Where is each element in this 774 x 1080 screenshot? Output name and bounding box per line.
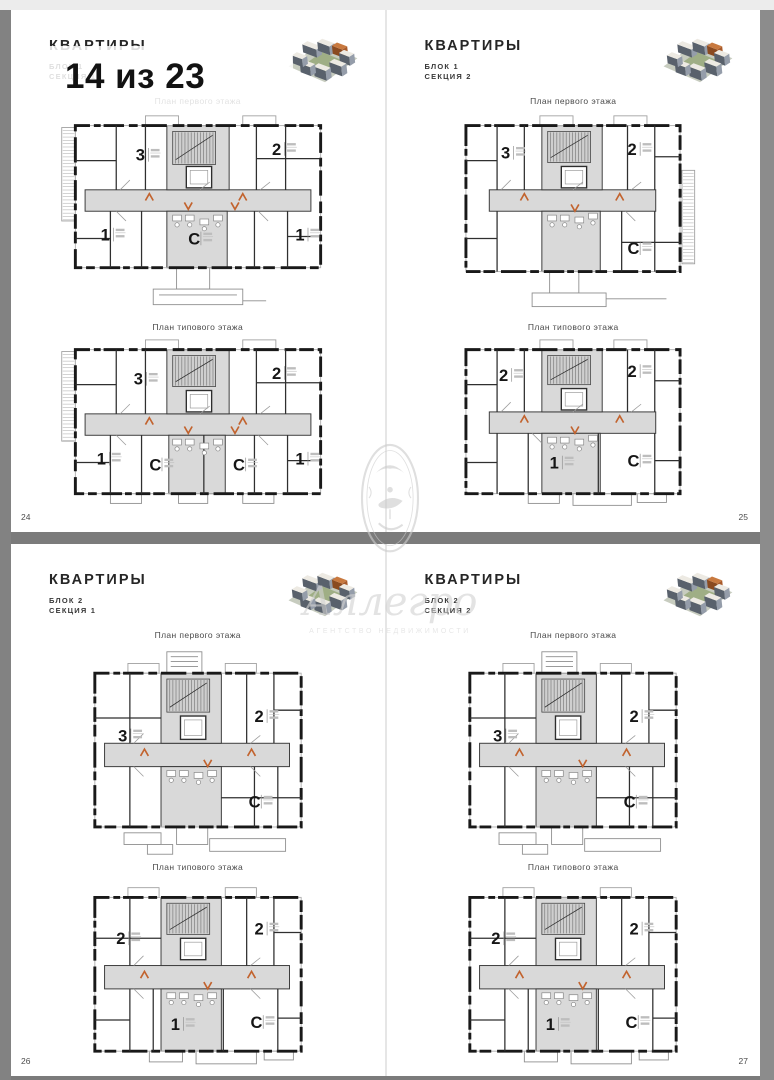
plan-title-typical-floor: План типового этажа [152,322,243,332]
svg-text:С: С [250,1013,262,1032]
page-number: 24 [21,512,30,522]
page-number: 25 [739,512,748,522]
svg-text:2: 2 [628,362,637,381]
svg-text:3: 3 [493,726,502,745]
svg-text:3: 3 [118,726,127,745]
plans-column: План первого этажа 32С План типового эта… [387,96,761,521]
page-header: КВАРТИРЫ БЛОК 2 СЕКЦИЯ 1 [49,572,147,616]
svg-text:2: 2 [630,920,639,939]
svg-text:С: С [188,229,200,248]
bottom-gap-band [0,1076,774,1080]
plan-title-first-floor: План первого этажа [155,630,241,640]
svg-text:2: 2 [630,707,639,726]
svg-text:3: 3 [135,146,144,165]
typical-floor-plan-drawing: 221С [427,336,719,521]
svg-text:2: 2 [254,920,263,939]
svg-text:2: 2 [116,929,125,948]
building-3d-render [283,562,363,628]
page-title: КВАРТИРЫ [425,38,523,54]
viewer-gutter-left [0,10,11,1080]
svg-text:С: С [248,793,260,812]
svg-text:1: 1 [100,225,109,244]
svg-text:3: 3 [134,370,143,389]
spread-gap-band [0,532,774,544]
page-subtitle: БЛОК 2 СЕКЦИЯ 1 [49,596,147,616]
svg-text:1: 1 [170,1015,179,1034]
svg-text:2: 2 [499,366,508,385]
page-subtitle: БЛОК 2 СЕКЦИЯ 2 [425,596,523,616]
page-header: КВАРТИРЫ БЛОК 2 СЕКЦИЯ 2 [425,572,523,616]
section-label: СЕКЦИЯ 1 [49,606,147,616]
plan-title-first-floor: План первого этажа [530,96,616,106]
svg-text:С: С [626,1013,638,1032]
block-label: БЛОК 2 [425,596,523,606]
page-24: КВАРТИРЫ БЛОК 1 СЕКЦИЯ 1 План первого эт… [11,10,385,532]
svg-text:С: С [149,456,161,475]
svg-text:2: 2 [272,140,281,159]
typical-floor-plan-drawing: 321СС1 [52,336,344,521]
first-floor-plan-drawing: 321С1 [52,110,344,316]
pdf-spread-bottom: КВАРТИРЫ БЛОК 2 СЕКЦИЯ 1 План первого эт… [11,544,760,1076]
plan-title-typical-floor: План типового этажа [528,322,619,332]
svg-text:С: С [233,456,245,475]
pdf-spread-top: КВАРТИРЫ БЛОК 1 СЕКЦИЯ 1 План первого эт… [11,10,760,532]
svg-text:1: 1 [97,450,106,469]
typical-floor-plan-drawing: 221С [52,876,344,1071]
svg-text:1: 1 [295,450,304,469]
svg-text:1: 1 [546,1015,555,1034]
plans-column: План первого этажа 32С План типового эта… [387,630,761,1071]
svg-text:3: 3 [501,144,510,163]
first-floor-plan-drawing: 32С [52,644,344,856]
page-25: КВАРТИРЫ БЛОК 1 СЕКЦИЯ 2 План первого эт… [385,10,761,532]
pdf-viewer: КВАРТИРЫ БЛОК 1 СЕКЦИЯ 1 План первого эт… [0,0,774,1080]
viewer-top-strip [0,0,774,10]
page-number: 26 [21,1056,30,1066]
page-header: КВАРТИРЫ БЛОК 1 СЕКЦИЯ 2 [425,38,523,82]
typical-floor-plan-drawing: 221С [427,876,719,1071]
plan-title-typical-floor: План типового этажа [528,862,619,872]
svg-text:2: 2 [628,140,637,159]
plan-title-first-floor: План первого этажа [530,630,616,640]
section-label: СЕКЦИЯ 2 [425,606,523,616]
svg-text:2: 2 [491,929,500,948]
building-3d-render [658,28,738,94]
svg-text:1: 1 [295,225,304,244]
page-indicator-overlay: 14 из 23 [41,46,293,108]
building-3d-render [283,28,363,94]
svg-text:2: 2 [254,707,263,726]
svg-text:С: С [624,793,636,812]
page-subtitle: БЛОК 1 СЕКЦИЯ 2 [425,62,523,82]
page-26: КВАРТИРЫ БЛОК 2 СЕКЦИЯ 1 План первого эт… [11,544,385,1076]
first-floor-plan-drawing: 32С [427,644,719,856]
svg-text:2: 2 [272,364,281,383]
svg-text:1: 1 [550,454,559,473]
block-label: БЛОК 1 [425,62,523,72]
viewer-gutter-right [760,10,774,1080]
first-floor-plan-drawing: 32С [427,110,719,316]
plans-column: План первого этажа 32С План типового эта… [11,630,385,1071]
page-27: КВАРТИРЫ БЛОК 2 СЕКЦИЯ 2 План первого эт… [385,544,761,1076]
page-number: 27 [739,1056,748,1066]
block-label: БЛОК 2 [49,596,147,606]
building-3d-render [658,562,738,628]
plans-column: План первого этажа 321С1 План типового э… [11,96,385,521]
section-label: СЕКЦИЯ 2 [425,72,523,82]
plan-title-typical-floor: План типового этажа [152,862,243,872]
svg-text:С: С [628,239,640,258]
svg-text:С: С [628,452,640,471]
page-title: КВАРТИРЫ [425,572,523,588]
page-title: КВАРТИРЫ [49,572,147,588]
